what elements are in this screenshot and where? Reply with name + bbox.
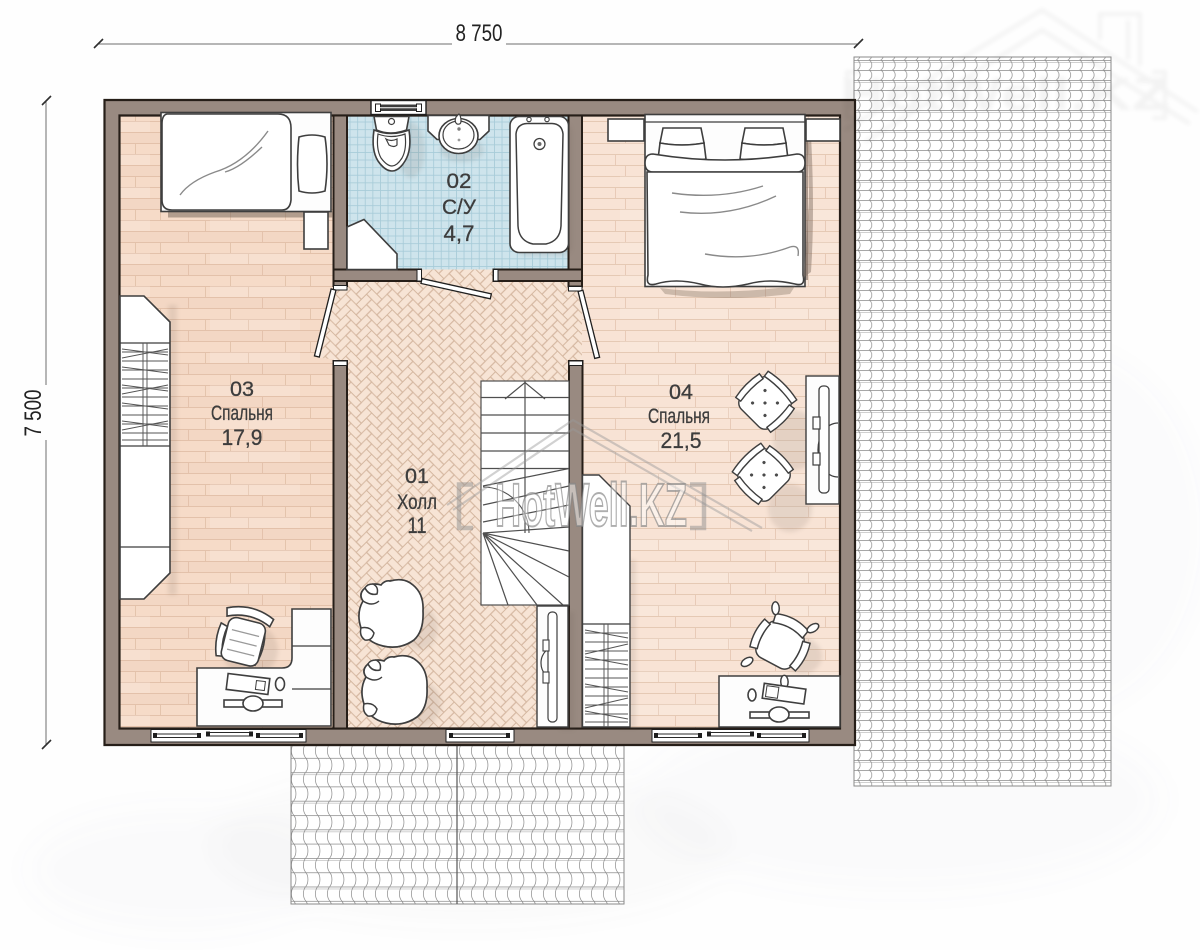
svg-text:Спальня: Спальня <box>211 402 273 425</box>
svg-text:HotWell.KZ: HotWell.KZ <box>840 68 1170 120</box>
svg-text:8 750: 8 750 <box>456 20 503 47</box>
svg-text:02: 02 <box>447 170 472 193</box>
svg-text:С/У: С/У <box>442 196 477 219</box>
svg-text:Холл: Холл <box>397 491 437 514</box>
svg-text:4,7: 4,7 <box>444 221 475 246</box>
svg-text:HotWell.KZ: HotWell.KZ <box>495 471 687 539</box>
svg-text:11: 11 <box>408 513 427 538</box>
svg-text:Спальня: Спальня <box>648 405 710 428</box>
svg-text:7 500: 7 500 <box>20 390 47 437</box>
svg-text:17,9: 17,9 <box>222 425 263 450</box>
svg-text:21,5: 21,5 <box>661 428 702 453</box>
svg-text:01: 01 <box>405 465 429 488</box>
svg-text:03: 03 <box>230 378 254 401</box>
svg-text:04: 04 <box>669 381 693 404</box>
